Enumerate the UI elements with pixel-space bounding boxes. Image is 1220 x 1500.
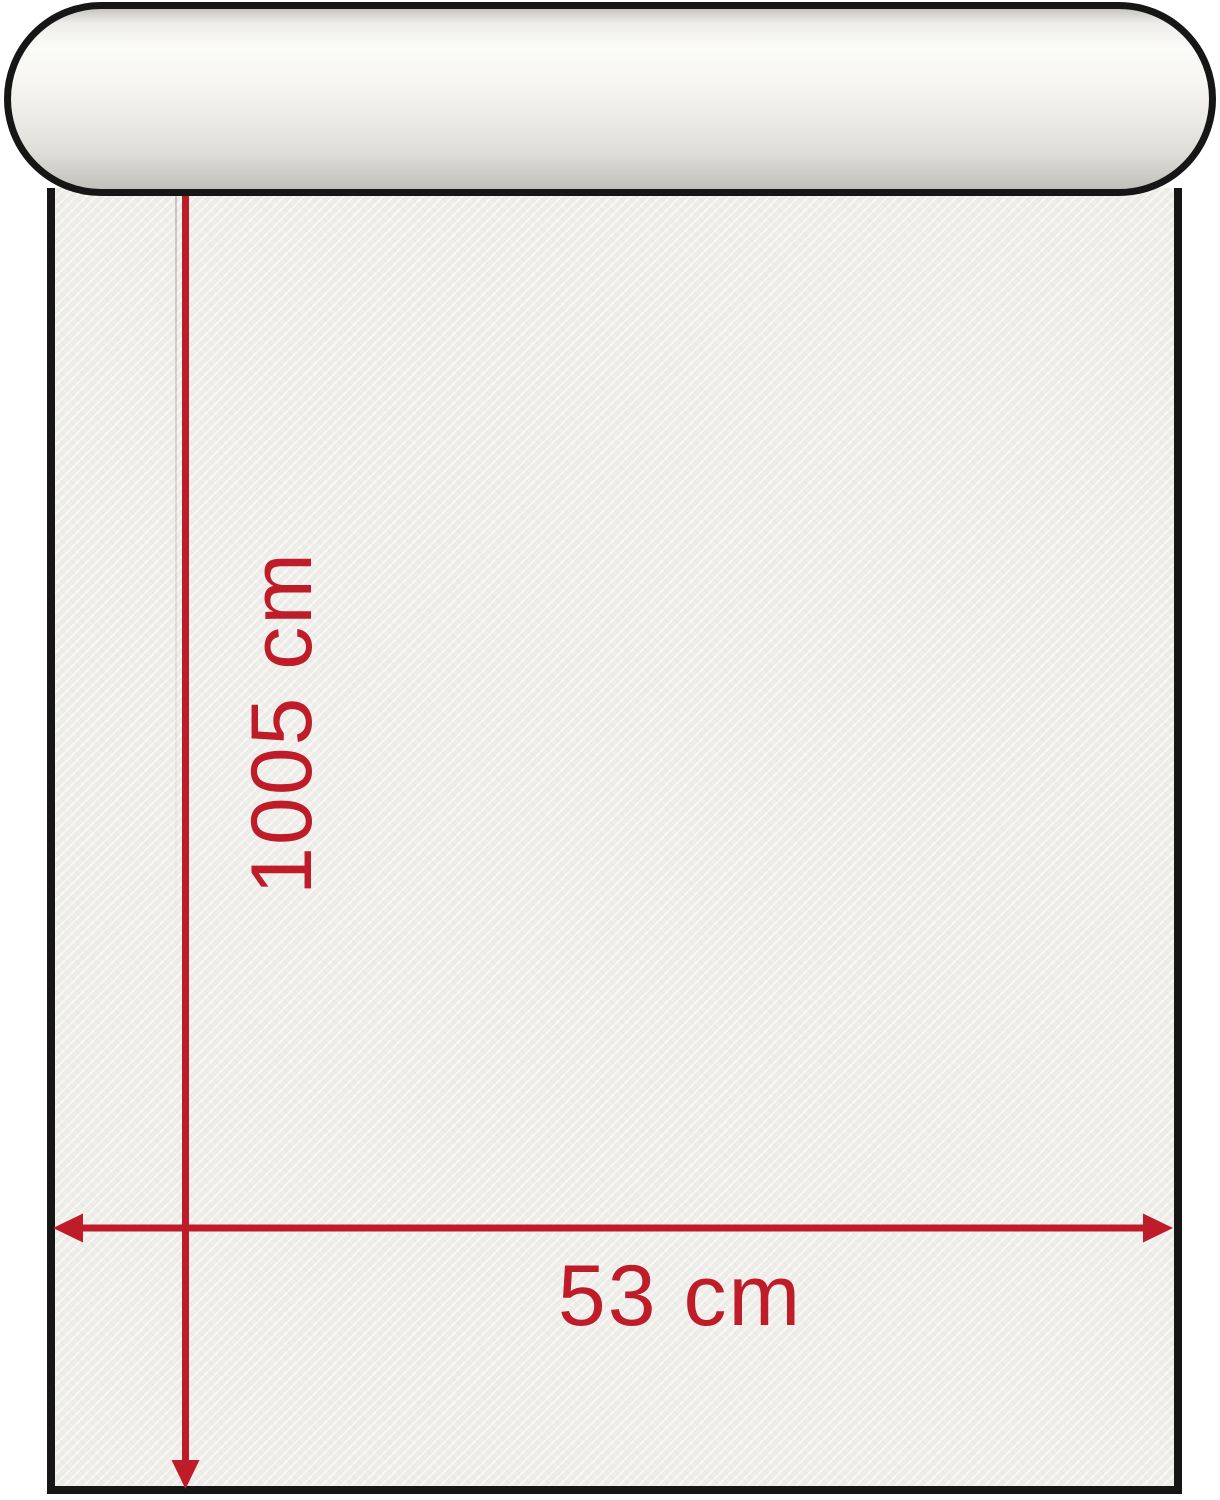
wallpaper-roll-cylinder [4, 2, 1216, 196]
sheet-crease-shadow [175, 196, 177, 1096]
width-dimension-label: 53 cm [558, 1253, 802, 1339]
wallpaper-roll-dimension-diagram: 1005 cm 53 cm [0, 0, 1220, 1500]
height-dimension-label: 1005 cm [239, 551, 325, 895]
